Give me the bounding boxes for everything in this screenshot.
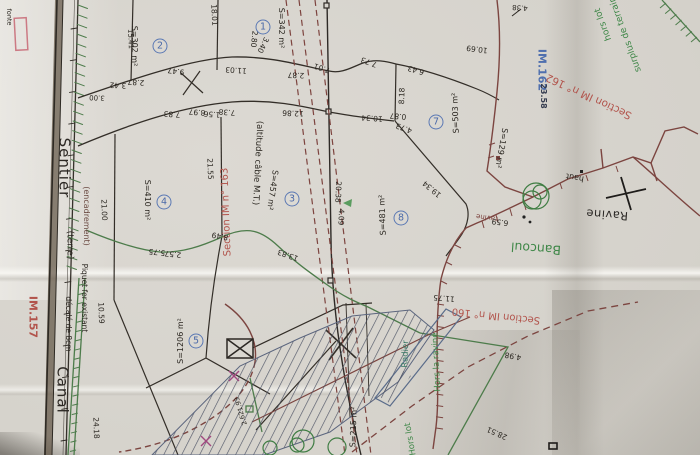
cadastral-map-photo: Sentier (terre) Canal (encadrement) Piqu… [0, 0, 700, 455]
parcel-area-label: S=457 m² [265, 169, 279, 210]
parcel-number-7: 7 [429, 115, 444, 130]
parcel-area-label: S=302 m² [130, 26, 138, 67]
parcel-area-label: S=1206 m² [177, 318, 185, 364]
parcel-area-label: S=503 m² [451, 93, 460, 134]
parcel-area-label: S=481 m² [378, 195, 387, 236]
parcel-number-3: 3 [285, 192, 300, 207]
parcel-area-label: S=410 m² [143, 180, 151, 221]
parcel-area-label: S=342 m² [277, 8, 285, 49]
parcel-number-1: 1 [256, 20, 271, 35]
parcel-number-5: 5 [189, 334, 204, 349]
parcel-number-8: 8 [394, 211, 409, 226]
parcel-markers: 1S=342 m²2S=302 m²3S=457 m²4S=410 m²5S=1… [0, 0, 700, 455]
parcel-number-4: 4 [157, 195, 172, 210]
parcel-number-2: 2 [153, 39, 168, 54]
